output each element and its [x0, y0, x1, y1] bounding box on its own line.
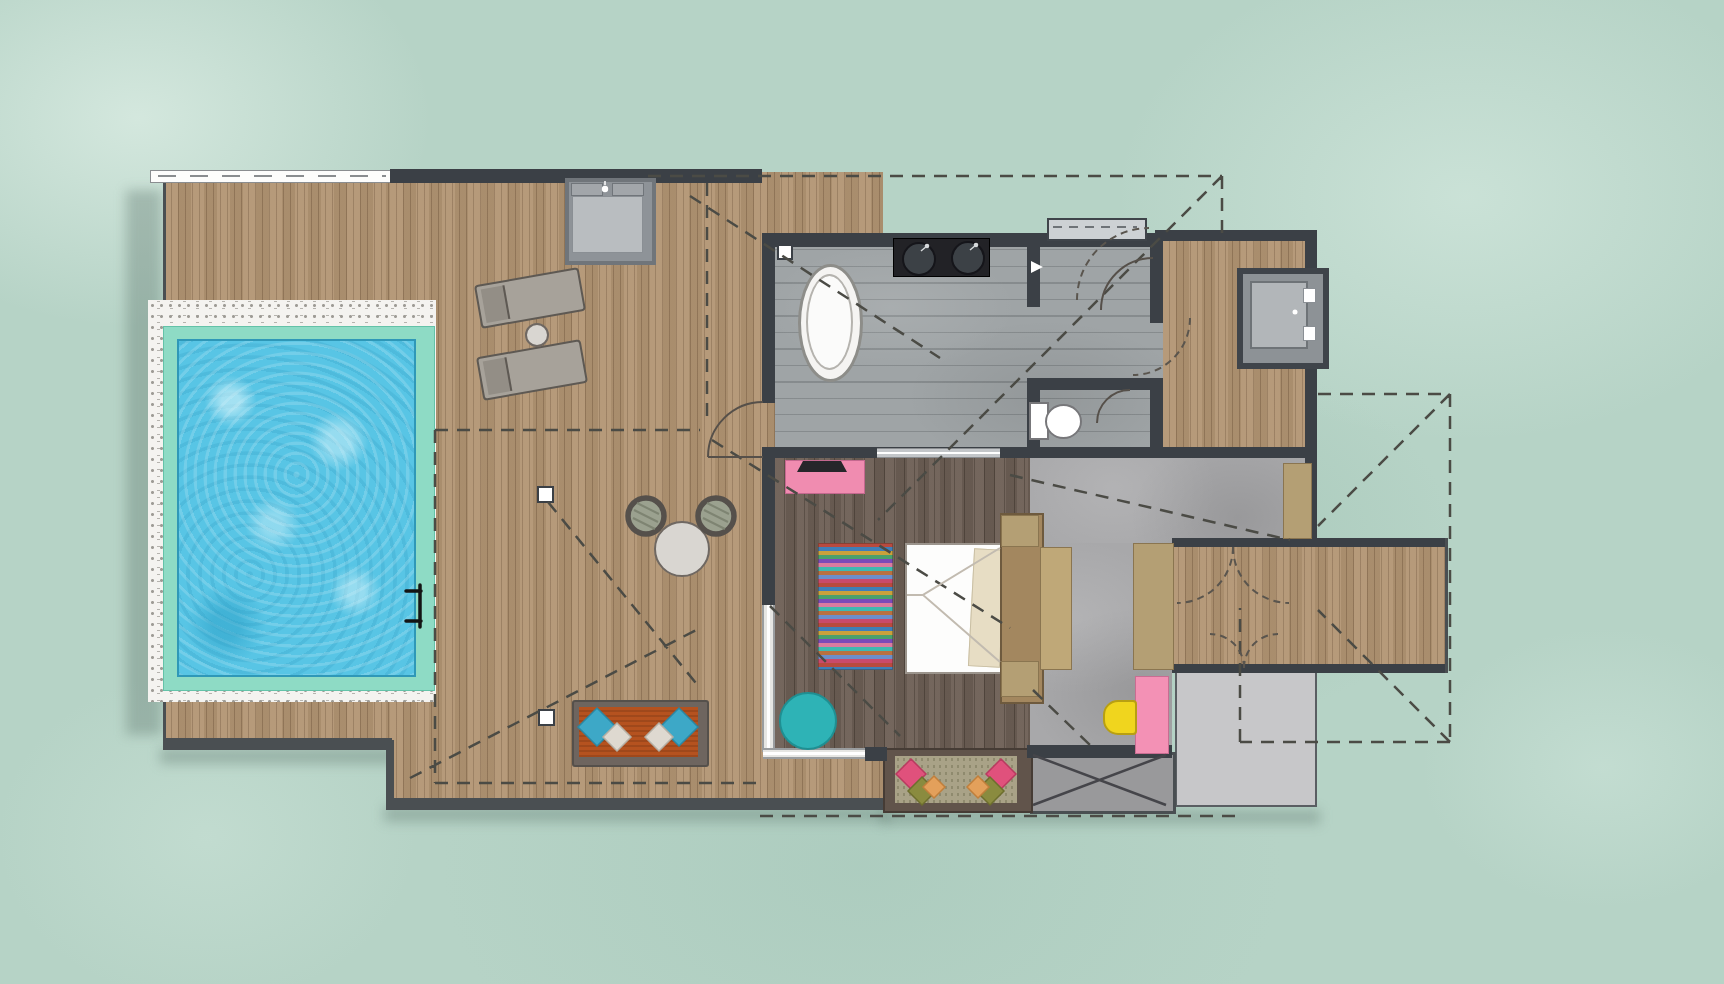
tray-drain-icon — [1293, 310, 1298, 315]
roof-overhang-dashed-lines — [410, 176, 1450, 816]
floor-plan-canvas — [0, 0, 1724, 984]
dining-set — [526, 324, 734, 576]
door-swing-dashed-arcs — [1077, 228, 1289, 668]
stair-cross-brace — [1033, 755, 1166, 805]
pool-ladder-icon — [406, 585, 421, 627]
door-swing-solid-arcs — [708, 258, 1153, 457]
plan-linework — [0, 0, 1724, 984]
bed-duvet-folds — [907, 548, 1000, 662]
daybed-pillows — [578, 708, 698, 751]
shower-ar row-icon — [1031, 261, 1043, 273]
net-lounge-pillows — [896, 759, 1016, 805]
shower-head-icon — [602, 186, 608, 192]
lounger-side-table — [526, 324, 548, 346]
